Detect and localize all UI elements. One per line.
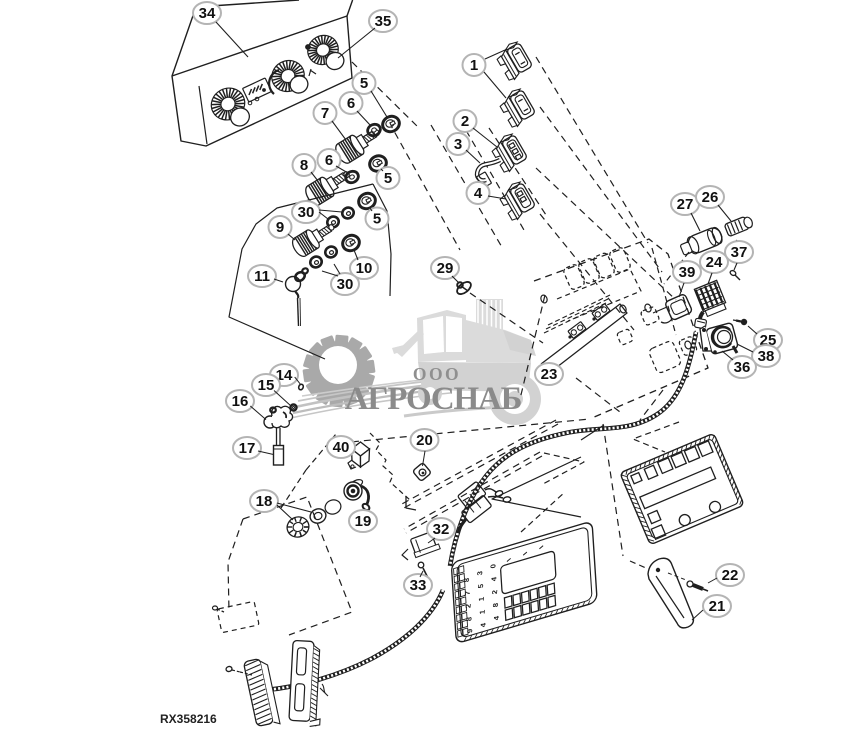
svg-text:7: 7 bbox=[321, 105, 329, 122]
svg-text:15: 15 bbox=[258, 377, 275, 394]
svg-text:27: 27 bbox=[677, 196, 694, 213]
svg-text:37: 37 bbox=[731, 244, 748, 261]
svg-text:40: 40 bbox=[333, 439, 350, 456]
svg-text:4: 4 bbox=[474, 185, 483, 202]
svg-text:5: 5 bbox=[360, 75, 368, 92]
svg-text:38: 38 bbox=[758, 348, 775, 365]
svg-text:8: 8 bbox=[300, 157, 308, 174]
svg-text:6: 6 bbox=[347, 95, 355, 112]
svg-text:9: 9 bbox=[276, 219, 284, 236]
svg-text:34: 34 bbox=[199, 5, 216, 22]
svg-text:19: 19 bbox=[355, 513, 372, 530]
svg-text:29: 29 bbox=[437, 260, 454, 277]
svg-text:24: 24 bbox=[706, 254, 723, 271]
svg-text:3: 3 bbox=[454, 136, 462, 153]
svg-text:39: 39 bbox=[679, 264, 696, 281]
svg-text:20: 20 bbox=[416, 432, 433, 449]
svg-text:RX358216: RX358216 bbox=[160, 712, 217, 726]
svg-text:30: 30 bbox=[298, 204, 315, 221]
svg-text:1: 1 bbox=[470, 57, 478, 74]
svg-text:5: 5 bbox=[384, 170, 392, 187]
svg-text:6: 6 bbox=[325, 152, 333, 169]
svg-text:11: 11 bbox=[254, 268, 270, 285]
svg-text:26: 26 bbox=[702, 189, 719, 206]
svg-text:21: 21 bbox=[709, 598, 726, 615]
svg-text:30: 30 bbox=[337, 276, 354, 293]
svg-text:18: 18 bbox=[256, 493, 273, 510]
svg-text:32: 32 bbox=[433, 521, 450, 538]
svg-text:2: 2 bbox=[461, 113, 469, 130]
svg-text:35: 35 bbox=[375, 13, 392, 30]
svg-text:23: 23 bbox=[541, 366, 558, 383]
svg-text:17: 17 bbox=[239, 440, 256, 457]
svg-text:АГРОСНАБ: АГРОСНАБ bbox=[345, 381, 522, 417]
svg-text:33: 33 bbox=[410, 577, 427, 594]
svg-text:5: 5 bbox=[373, 211, 381, 228]
svg-text:22: 22 bbox=[722, 567, 739, 584]
svg-text:16: 16 bbox=[232, 393, 249, 410]
svg-text:36: 36 bbox=[734, 359, 751, 376]
svg-text:10: 10 bbox=[356, 260, 373, 277]
